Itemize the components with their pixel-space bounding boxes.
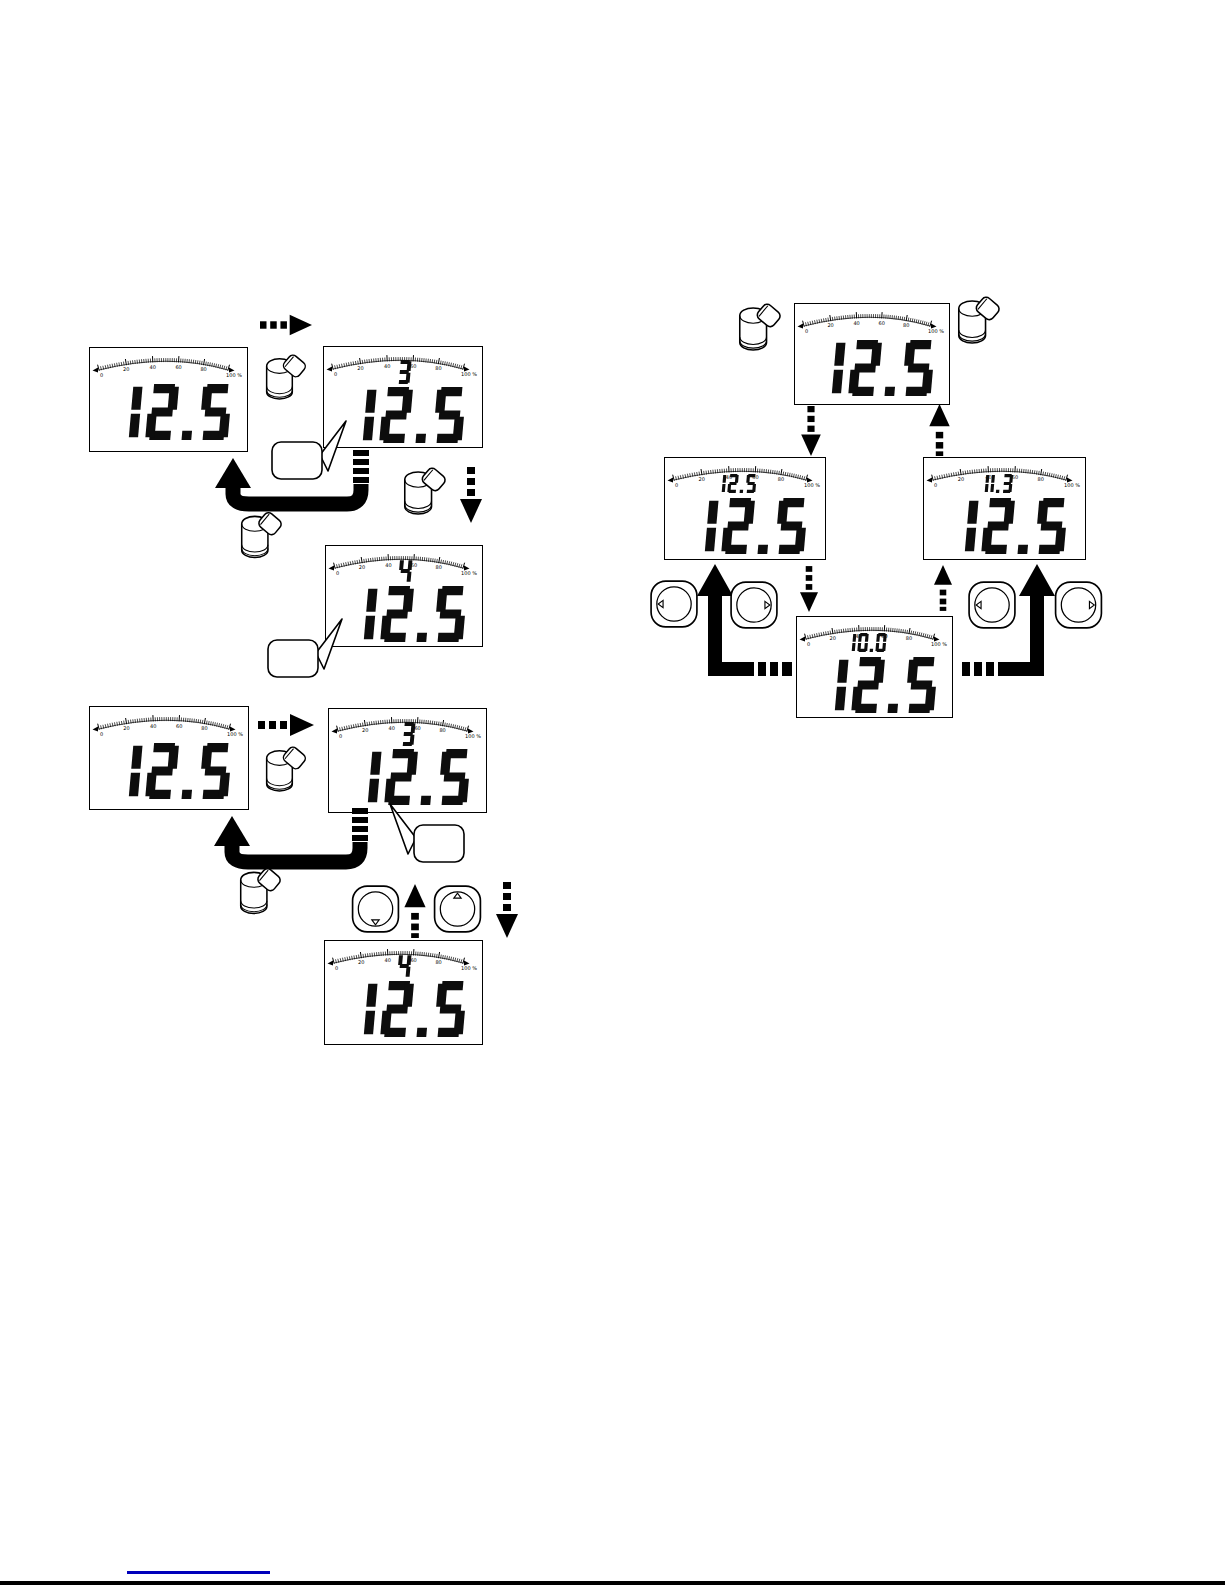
lcd-display-top: 020406080100 % <box>794 303 950 405</box>
svg-text:40: 40 <box>385 957 391 963</box>
svg-text:100 %: 100 % <box>461 371 477 377</box>
footer-link-underline[interactable] <box>127 1571 270 1574</box>
svg-text:0: 0 <box>335 965 338 971</box>
svg-text:100 %: 100 % <box>928 328 944 334</box>
svg-text:40: 40 <box>853 320 859 326</box>
svg-text:0: 0 <box>934 482 937 488</box>
page-bottom-rule <box>0 1581 1225 1585</box>
svg-text:60: 60 <box>176 723 182 729</box>
svg-text:100 %: 100 % <box>226 372 242 378</box>
svg-text:80: 80 <box>201 725 207 731</box>
lcd-value <box>395 360 413 384</box>
svg-text:40: 40 <box>389 725 395 731</box>
svg-text:60: 60 <box>879 320 885 326</box>
svg-text:100 %: 100 % <box>461 965 477 971</box>
svg-text:100 %: 100 % <box>461 570 477 576</box>
svg-text:20: 20 <box>359 564 365 570</box>
svg-text:20: 20 <box>830 635 836 641</box>
svg-text:0: 0 <box>675 482 678 488</box>
svg-text:0: 0 <box>339 733 342 739</box>
dashed-arrow-up-icon <box>402 884 428 938</box>
svg-text:80: 80 <box>778 476 784 482</box>
nav-button-down-icon <box>350 884 401 934</box>
lcd-value <box>827 340 940 396</box>
nav-button-left-icon <box>649 579 699 629</box>
svg-text:40: 40 <box>150 364 156 370</box>
magnet-pen-icon <box>264 742 310 794</box>
magnet-pen-icon <box>238 864 285 916</box>
lcd-value <box>720 474 758 493</box>
lcd-display-normal-b: 020406080100 % <box>89 706 249 810</box>
dashed-arrow-up-icon <box>934 562 952 614</box>
svg-text:0: 0 <box>336 570 339 576</box>
nav-button-up-icon <box>432 884 483 934</box>
lcd-value <box>124 743 237 799</box>
lcd-display-setting-3-b: 020406080100 % <box>328 708 487 813</box>
svg-text:80: 80 <box>906 635 912 641</box>
manual-page: 020406080100 % 020406080100 % 0204060801… <box>0 0 1225 1585</box>
dashed-arrow-down-icon <box>801 406 821 456</box>
lcd-display-setting-4-a: 020406080100 % <box>325 545 483 647</box>
magnet-pen-icon <box>956 293 1004 345</box>
svg-text:20: 20 <box>958 476 964 482</box>
lcd-percent-scale: 020406080100 % <box>797 306 946 336</box>
svg-text:20: 20 <box>358 959 364 965</box>
lcd-value <box>960 498 1073 554</box>
magnet-pen-icon <box>402 464 450 516</box>
lcd-value <box>363 749 476 805</box>
svg-text:40: 40 <box>385 562 391 568</box>
svg-text:0: 0 <box>100 372 103 378</box>
lcd-percent-scale: 020406080100 % <box>92 709 245 739</box>
lcd-display-left: 020406080100 % <box>664 457 826 560</box>
dashed-arrow-down-icon <box>800 564 818 614</box>
svg-text:0: 0 <box>807 641 810 647</box>
dashed-arrow-up-icon <box>929 404 950 456</box>
svg-text:80: 80 <box>439 727 445 733</box>
svg-text:20: 20 <box>827 322 833 328</box>
svg-text:40: 40 <box>384 363 390 369</box>
svg-text:80: 80 <box>903 322 909 328</box>
dotted-arrow-right-icon <box>258 714 314 736</box>
magnet-pen-icon <box>737 300 785 352</box>
svg-text:80: 80 <box>435 365 441 371</box>
svg-text:100 %: 100 % <box>227 731 243 737</box>
lcd-value <box>399 722 417 746</box>
magnet-pen-icon <box>264 350 310 402</box>
svg-text:100 %: 100 % <box>804 482 820 488</box>
svg-text:0: 0 <box>805 328 808 334</box>
lcd-value <box>358 387 471 443</box>
svg-text:80: 80 <box>435 959 441 965</box>
lcd-value <box>359 981 472 1037</box>
lcd-display-right: 020406080100 % <box>923 457 1086 560</box>
svg-text:20: 20 <box>357 365 363 371</box>
lcd-value <box>395 954 413 978</box>
dotted-arrow-right-icon <box>260 314 312 336</box>
lcd-value <box>700 498 813 554</box>
lcd-value <box>124 384 237 440</box>
svg-text:100 %: 100 % <box>931 641 947 647</box>
svg-text:20: 20 <box>362 727 368 733</box>
lcd-value <box>830 657 943 713</box>
callout-bubble-icon <box>388 802 466 864</box>
dashed-arrow-down-icon <box>496 882 518 938</box>
svg-text:60: 60 <box>175 364 181 370</box>
lcd-display-normal-a: 020406080100 % <box>89 347 248 452</box>
svg-text:80: 80 <box>1038 476 1044 482</box>
lcd-value <box>359 586 472 642</box>
svg-text:80: 80 <box>200 366 206 372</box>
svg-text:0: 0 <box>334 371 337 377</box>
nav-button-right-icon <box>729 580 779 630</box>
svg-text:80: 80 <box>436 564 442 570</box>
svg-text:20: 20 <box>123 366 129 372</box>
svg-text:0: 0 <box>100 731 103 737</box>
lcd-value <box>396 559 414 583</box>
lcd-display-setting-4-b: 020406080100 % <box>324 940 483 1045</box>
lcd-display-bottom: 020406080100 % <box>796 616 953 718</box>
nav-button-right-icon <box>1053 580 1104 630</box>
svg-text:20: 20 <box>699 476 705 482</box>
lcd-value <box>850 633 888 652</box>
lcd-value <box>983 474 1014 493</box>
lcd-percent-scale: 020406080100 % <box>92 350 244 380</box>
svg-text:100 %: 100 % <box>465 733 481 739</box>
callout-bubble-icon <box>266 617 344 679</box>
svg-text:20: 20 <box>123 725 129 731</box>
nav-button-left-icon <box>967 580 1017 630</box>
dashed-arrow-down-icon <box>460 467 482 523</box>
svg-text:40: 40 <box>150 723 156 729</box>
svg-text:100 %: 100 % <box>1064 482 1080 488</box>
magnet-pen-icon <box>239 508 286 560</box>
